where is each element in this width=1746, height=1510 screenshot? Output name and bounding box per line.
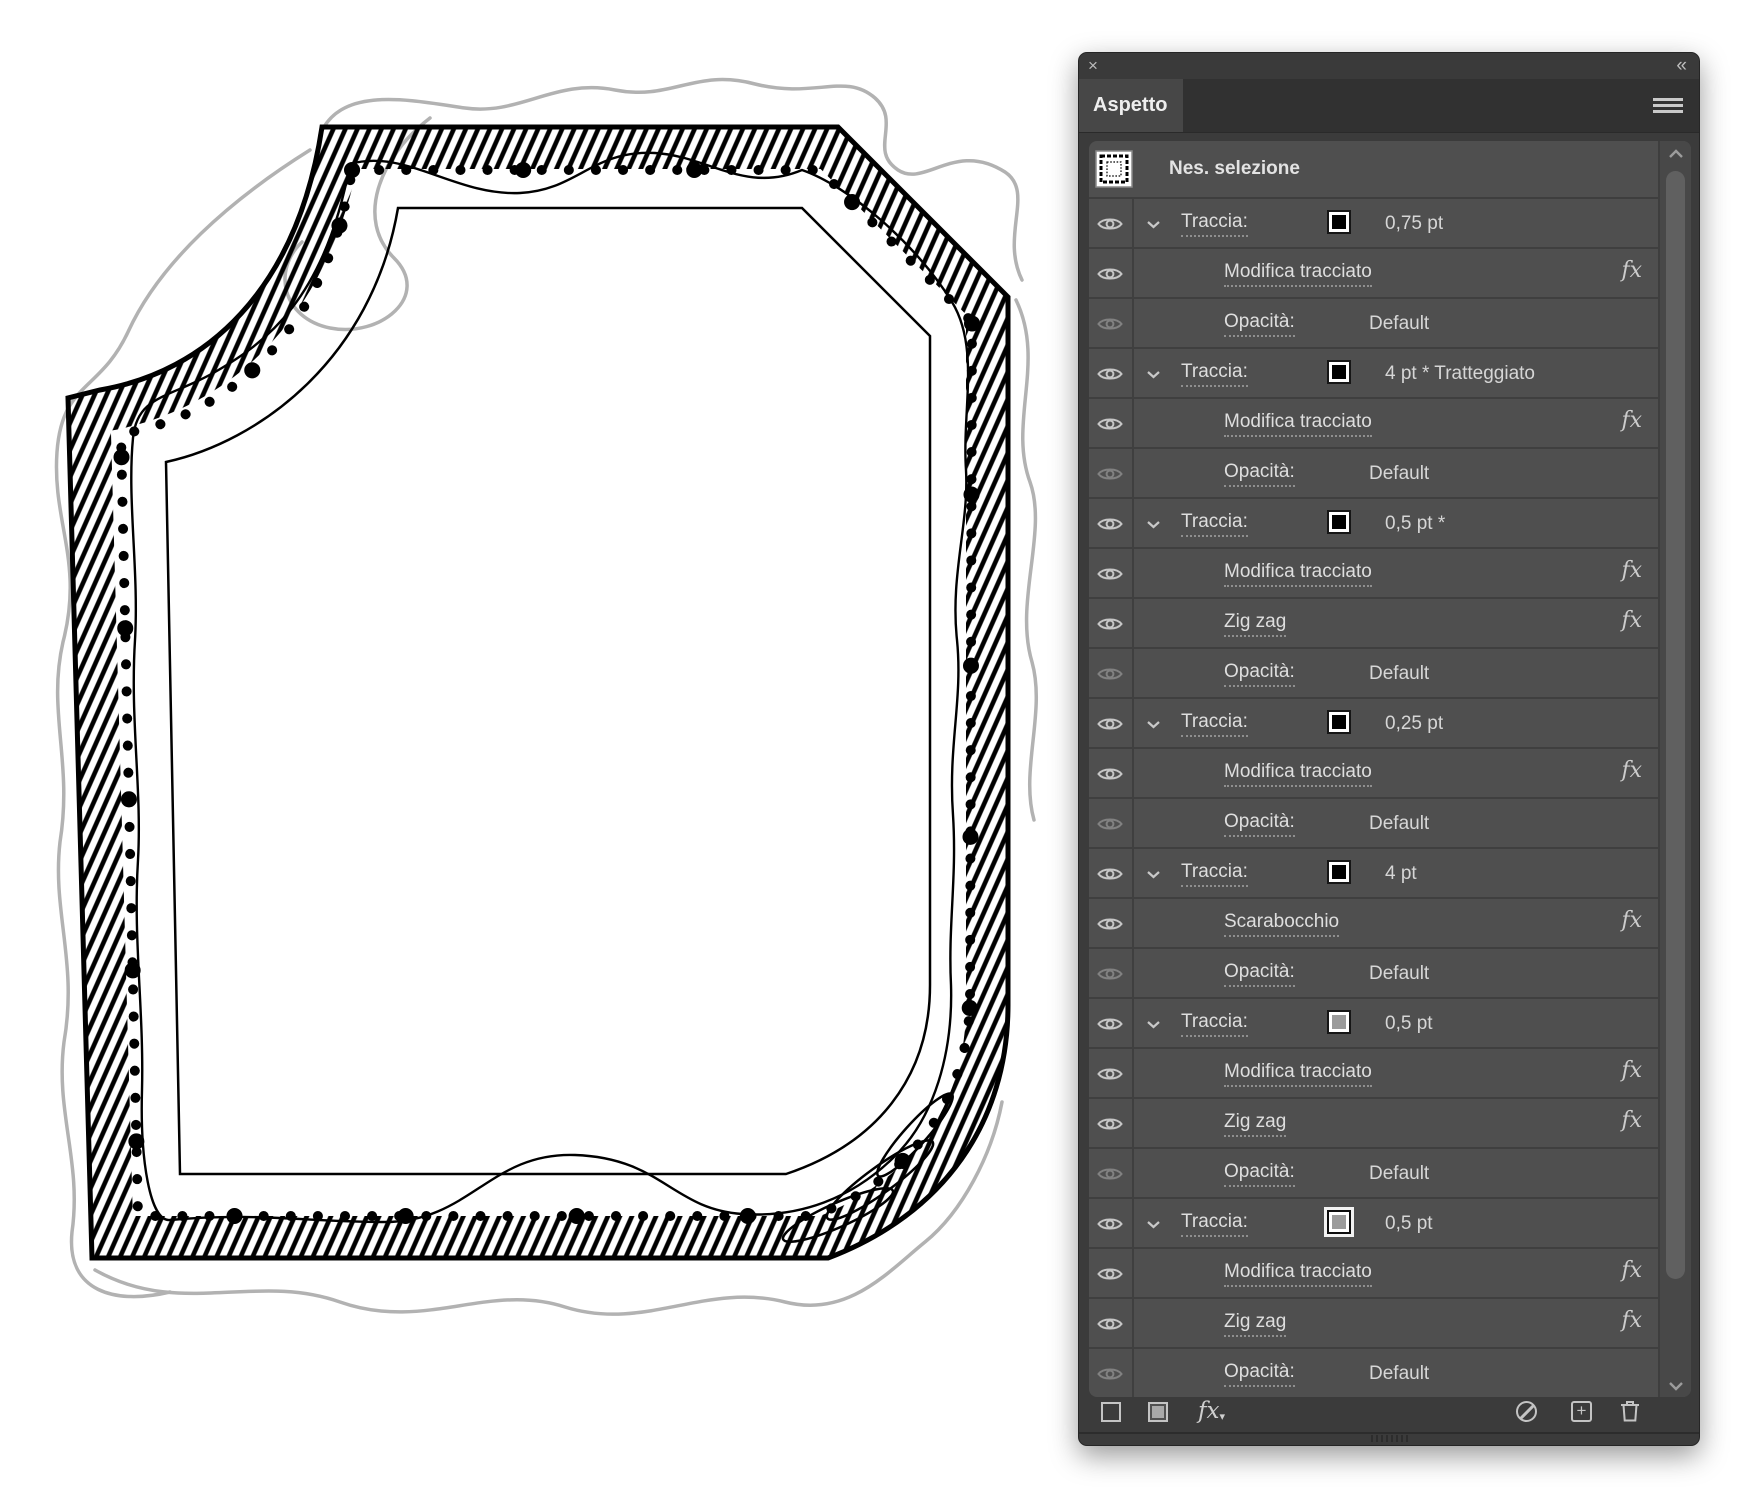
row-value[interactable]: 0,5 pt — [1385, 1213, 1433, 1235]
eye-icon[interactable] — [1097, 1266, 1123, 1282]
new-stroke-icon[interactable] — [1101, 1402, 1121, 1422]
panel-footer: fx▾ + — [1079, 1397, 1699, 1434]
color-swatch[interactable] — [1329, 862, 1349, 882]
color-swatch[interactable] — [1329, 1212, 1349, 1232]
row-body: Opacità: Default — [1134, 799, 1658, 847]
row-value[interactable]: 0,75 pt — [1385, 213, 1443, 235]
clear-appearance-icon[interactable] — [1516, 1401, 1537, 1422]
color-swatch[interactable] — [1329, 362, 1349, 382]
illustrator-workspace: × « Aspetto Nes. selezione — [0, 0, 1746, 1510]
eye-icon[interactable] — [1097, 416, 1123, 432]
fx-icon[interactable]: fx — [1621, 258, 1642, 283]
row-label[interactable]: Traccia: — [1181, 512, 1248, 537]
row-label[interactable]: Modifica tracciato — [1224, 1062, 1372, 1087]
row-body: Opacità: Default — [1134, 449, 1658, 497]
visibility-cell[interactable] — [1089, 1049, 1134, 1097]
fx-icon[interactable]: fx — [1621, 608, 1642, 633]
appearance-row[interactable]: Modifica tracciato fx — [1089, 399, 1658, 449]
appearance-row[interactable]: Traccia: 0,75 pt — [1089, 199, 1658, 249]
row-label[interactable]: Modifica tracciato — [1224, 262, 1372, 287]
chevron-down-icon[interactable] — [1146, 520, 1161, 529]
color-swatch[interactable] — [1329, 1012, 1349, 1032]
row-label[interactable]: Opacità: — [1224, 962, 1295, 987]
eye-icon[interactable] — [1097, 966, 1123, 982]
selection-thumbnail — [1095, 150, 1133, 188]
row-label[interactable]: Zig zag — [1224, 612, 1286, 637]
eye-icon[interactable] — [1097, 1216, 1123, 1232]
row-body: Opacità: Default — [1134, 649, 1658, 697]
row-label[interactable]: Modifica tracciato — [1224, 1262, 1372, 1287]
color-swatch[interactable] — [1329, 712, 1349, 732]
appearance-row[interactable]: Modifica tracciato fx — [1089, 549, 1658, 599]
eye-icon[interactable] — [1097, 616, 1123, 632]
visibility-cell[interactable] — [1089, 949, 1134, 997]
resize-grip[interactable] — [1371, 1435, 1409, 1442]
fx-icon[interactable]: fx — [1621, 758, 1642, 783]
row-body: Traccia: 0,5 pt — [1134, 1199, 1658, 1247]
row-label[interactable]: Traccia: — [1181, 712, 1248, 737]
row-body: Modifica tracciato fx — [1134, 249, 1658, 297]
chevron-down-icon[interactable] — [1146, 1020, 1161, 1029]
row-body: Traccia: 0,5 pt — [1134, 999, 1658, 1047]
row-body: Traccia: 4 pt — [1134, 849, 1658, 897]
row-body: Traccia: 0,5 pt * — [1134, 499, 1658, 547]
appearance-row[interactable]: Zig zag fx — [1089, 599, 1658, 649]
visibility-cell[interactable] — [1089, 499, 1134, 547]
eye-icon[interactable] — [1097, 1316, 1123, 1332]
scribble-hatch-border — [68, 127, 1008, 1258]
outer-outline-stroke — [68, 127, 1008, 1258]
panel-bottom-strip — [1079, 1432, 1699, 1445]
delete-item-icon[interactable] — [1619, 1399, 1641, 1423]
panel-tabbar: Aspetto — [1079, 79, 1699, 133]
row-value[interactable]: 4 pt * Tratteggiato — [1385, 363, 1535, 385]
chevron-down-icon[interactable] — [1146, 220, 1161, 229]
eye-icon[interactable] — [1097, 766, 1123, 782]
row-body: Scarabocchio fx — [1134, 899, 1658, 947]
visibility-cell[interactable] — [1089, 849, 1134, 897]
close-icon[interactable]: × — [1088, 56, 1098, 76]
visibility-cell[interactable] — [1089, 549, 1134, 597]
row-label[interactable]: Traccia: — [1181, 862, 1248, 887]
chevron-down-icon[interactable] — [1146, 870, 1161, 879]
eye-icon[interactable] — [1097, 316, 1123, 332]
fx-icon[interactable]: fx — [1621, 408, 1642, 433]
pencil-scribble-strokes — [56, 80, 1036, 1315]
eye-icon[interactable] — [1097, 866, 1123, 882]
eye-icon[interactable] — [1097, 1366, 1123, 1382]
row-label[interactable]: Zig zag — [1224, 1112, 1286, 1137]
fx-icon[interactable]: fx — [1621, 1108, 1642, 1133]
visibility-cell[interactable] — [1089, 1099, 1134, 1147]
appearance-row[interactable]: Modifica tracciato fx — [1089, 1249, 1658, 1299]
row-value[interactable]: Default — [1369, 313, 1429, 335]
row-body: Opacità: Default — [1134, 299, 1658, 347]
appearance-row[interactable]: Modifica tracciato fx — [1089, 749, 1658, 799]
visibility-cell[interactable] — [1089, 1199, 1134, 1247]
appearance-row[interactable]: Opacità: Default — [1089, 1349, 1658, 1397]
fx-icon[interactable]: fx — [1621, 1308, 1642, 1333]
eye-icon[interactable] — [1097, 566, 1123, 582]
appearance-row[interactable]: Opacità: Default — [1089, 949, 1658, 999]
appearance-row[interactable]: Zig zag fx — [1089, 1299, 1658, 1349]
row-label[interactable]: Opacità: — [1224, 312, 1295, 337]
visibility-cell[interactable] — [1089, 199, 1134, 247]
fx-icon[interactable]: fx — [1621, 558, 1642, 583]
appearance-row[interactable]: Modifica tracciato fx — [1089, 249, 1658, 299]
row-body: Zig zag fx — [1134, 1299, 1658, 1347]
appearance-row[interactable]: Opacità: Default — [1089, 1149, 1658, 1199]
visibility-cell[interactable] — [1089, 599, 1134, 647]
add-effect-button[interactable]: fx▾ — [1198, 1398, 1225, 1424]
visibility-cell[interactable] — [1089, 749, 1134, 797]
row-label[interactable]: Zig zag — [1224, 1312, 1286, 1337]
eye-icon[interactable] — [1097, 1166, 1123, 1182]
row-body: Traccia: 0,75 pt — [1134, 199, 1658, 247]
row-label[interactable]: Modifica tracciato — [1224, 762, 1372, 787]
tab-label: Aspetto — [1093, 94, 1167, 117]
row-label[interactable]: Opacità: — [1224, 1162, 1295, 1187]
row-value[interactable]: Default — [1369, 963, 1429, 985]
row-body: Modifica tracciato fx — [1134, 399, 1658, 447]
selection-label: Nes. selezione — [1169, 158, 1300, 180]
row-label[interactable]: Traccia: — [1181, 1012, 1248, 1037]
row-body: Modifica tracciato fx — [1134, 749, 1658, 797]
visibility-cell[interactable] — [1089, 299, 1134, 347]
visibility-cell[interactable] — [1089, 899, 1134, 947]
visibility-cell[interactable] — [1089, 1299, 1134, 1347]
row-label[interactable]: Traccia: — [1181, 212, 1248, 237]
row-label[interactable]: Traccia: — [1181, 362, 1248, 387]
appearance-row[interactable]: Traccia: 4 pt — [1089, 849, 1658, 899]
collapse-icon[interactable]: « — [1676, 55, 1685, 77]
row-body: Modifica tracciato fx — [1134, 1249, 1658, 1297]
eye-icon[interactable] — [1097, 1116, 1123, 1132]
row-body: Traccia: 4 pt * Tratteggiato — [1134, 349, 1658, 397]
eye-icon[interactable] — [1097, 716, 1123, 732]
new-fill-icon[interactable] — [1148, 1402, 1168, 1422]
row-value[interactable]: Default — [1369, 1163, 1429, 1185]
row-label[interactable]: Opacità: — [1224, 1362, 1295, 1387]
visibility-cell[interactable] — [1089, 649, 1134, 697]
row-label[interactable]: Scarabocchio — [1224, 912, 1339, 937]
appearance-row[interactable]: Opacità: Default — [1089, 649, 1658, 699]
row-label[interactable]: Modifica tracciato — [1224, 412, 1372, 437]
appearance-row[interactable]: Opacità: Default — [1089, 449, 1658, 499]
row-body: Opacità: Default — [1134, 1149, 1658, 1197]
visibility-cell[interactable] — [1089, 399, 1134, 447]
row-body: Zig zag fx — [1134, 599, 1658, 647]
panel-titlebar[interactable]: × « — [1079, 53, 1699, 79]
eye-icon[interactable] — [1097, 266, 1123, 282]
appearance-row[interactable]: Traccia: 0,5 pt — [1089, 999, 1658, 1049]
inner-outline-stroke — [166, 208, 930, 1174]
chevron-down-icon[interactable] — [1146, 720, 1161, 729]
appearance-row[interactable]: Traccia: 4 pt * Tratteggiato — [1089, 349, 1658, 399]
appearance-row[interactable]: Zig zag fx — [1089, 1099, 1658, 1149]
fx-icon[interactable]: fx — [1621, 1258, 1642, 1283]
chevron-down-icon[interactable] — [1146, 1220, 1161, 1229]
row-value[interactable]: 4 pt — [1385, 863, 1417, 885]
row-value[interactable]: 0,25 pt — [1385, 713, 1443, 735]
visibility-cell[interactable] — [1089, 449, 1134, 497]
appearance-row[interactable]: Opacità: Default — [1089, 299, 1658, 349]
row-body: Traccia: 0,25 pt — [1134, 699, 1658, 747]
visibility-cell[interactable] — [1089, 349, 1134, 397]
row-body: Zig zag fx — [1134, 1099, 1658, 1147]
row-label[interactable]: Opacità: — [1224, 462, 1295, 487]
tab-aspetto[interactable]: Aspetto — [1079, 79, 1183, 132]
appearance-row[interactable]: Scarabocchio fx — [1089, 899, 1658, 949]
appearance-row[interactable]: Traccia: 0,25 pt — [1089, 699, 1658, 749]
eye-icon[interactable] — [1097, 816, 1123, 832]
row-value[interactable]: Default — [1369, 813, 1429, 835]
row-value[interactable]: 0,5 pt * — [1385, 513, 1445, 535]
visibility-cell[interactable] — [1089, 999, 1134, 1047]
fx-icon[interactable]: fx — [1621, 908, 1642, 933]
eye-icon[interactable] — [1097, 1066, 1123, 1082]
fx-icon[interactable]: fx — [1621, 1058, 1642, 1083]
frame-artwork[interactable] — [0, 0, 1078, 1510]
appearance-rows: Nes. selezione Traccia: 0,75 pt — [1089, 141, 1658, 1397]
chevron-down-icon[interactable] — [1146, 370, 1161, 379]
row-body: Opacità: Default — [1134, 1349, 1658, 1397]
row-value[interactable]: 0,5 pt — [1385, 1013, 1433, 1035]
scrollbar[interactable] — [1658, 141, 1691, 1397]
row-body: Modifica tracciato fx — [1134, 549, 1658, 597]
appearance-row[interactable]: Traccia: 0,5 pt * — [1089, 499, 1658, 549]
visibility-cell[interactable] — [1089, 1349, 1134, 1397]
visibility-cell[interactable] — [1089, 1149, 1134, 1197]
row-body: Opacità: Default — [1134, 949, 1658, 997]
visibility-cell[interactable] — [1089, 249, 1134, 297]
row-label[interactable]: Traccia: — [1181, 1212, 1248, 1237]
eye-icon[interactable] — [1097, 366, 1123, 382]
row-value[interactable]: Default — [1369, 463, 1429, 485]
scrollbar-thumb[interactable] — [1666, 171, 1685, 1279]
row-value[interactable]: Default — [1369, 663, 1429, 685]
visibility-cell[interactable] — [1089, 799, 1134, 847]
color-swatch[interactable] — [1329, 212, 1349, 232]
appearance-row[interactable]: Modifica tracciato fx — [1089, 1049, 1658, 1099]
row-value[interactable]: Default — [1369, 1363, 1429, 1385]
eye-icon[interactable] — [1097, 216, 1123, 232]
eye-icon[interactable] — [1097, 916, 1123, 932]
eye-icon[interactable] — [1097, 466, 1123, 482]
eye-icon[interactable] — [1097, 516, 1123, 532]
eye-icon[interactable] — [1097, 666, 1123, 682]
selection-header-row: Nes. selezione — [1089, 141, 1658, 199]
eye-icon[interactable] — [1097, 1016, 1123, 1032]
row-label[interactable]: Opacità: — [1224, 812, 1295, 837]
visibility-cell[interactable] — [1089, 699, 1134, 747]
appearance-row[interactable]: Opacità: Default — [1089, 799, 1658, 849]
duplicate-item-icon[interactable]: + — [1571, 1401, 1592, 1422]
color-swatch[interactable] — [1329, 512, 1349, 532]
aspetto-panel: × « Aspetto Nes. selezione — [1078, 52, 1700, 1446]
appearance-list: Nes. selezione Traccia: 0,75 pt — [1089, 141, 1691, 1397]
panel-menu-icon[interactable] — [1653, 98, 1683, 113]
scroll-down-icon[interactable] — [1668, 1381, 1684, 1391]
visibility-cell[interactable] — [1089, 1249, 1134, 1297]
row-label[interactable]: Modifica tracciato — [1224, 562, 1372, 587]
appearance-row[interactable]: Traccia: 0,5 pt — [1089, 1199, 1658, 1249]
scroll-up-icon[interactable] — [1668, 149, 1684, 159]
row-label[interactable]: Opacità: — [1224, 662, 1295, 687]
row-body: Modifica tracciato fx — [1134, 1049, 1658, 1097]
